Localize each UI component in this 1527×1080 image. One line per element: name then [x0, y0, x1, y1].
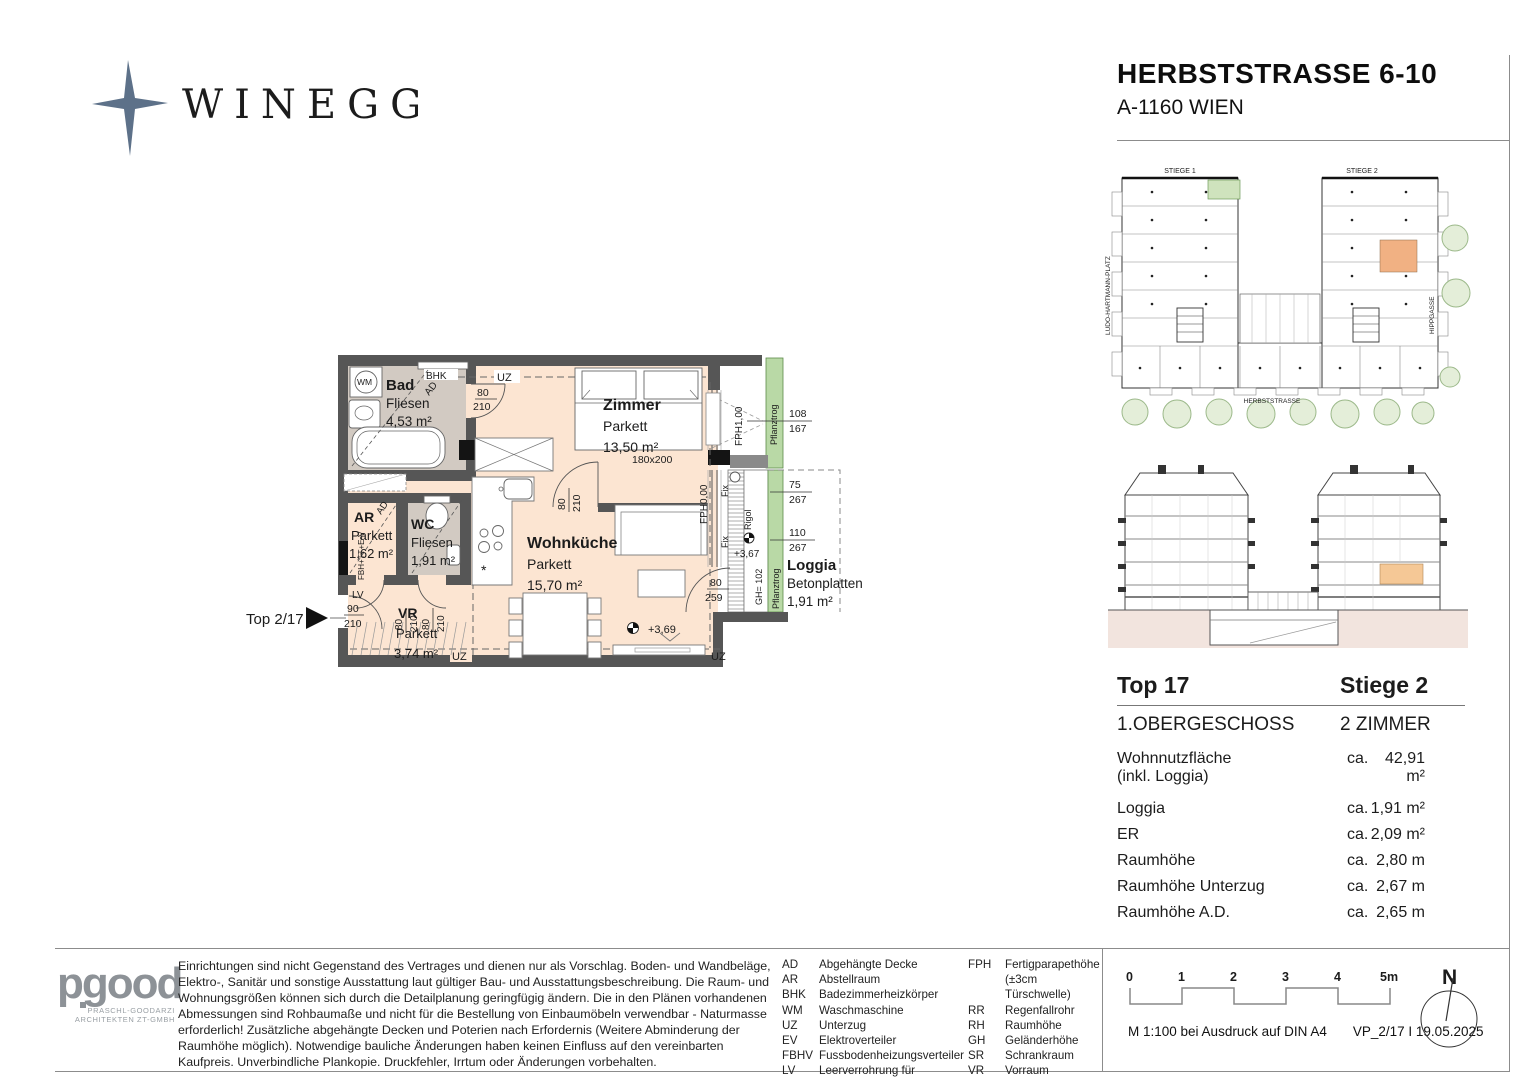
sideboard	[613, 645, 705, 655]
pgood-text: pgood	[57, 959, 181, 1008]
dim-bad-door-w: 80	[477, 387, 489, 399]
desc: Abgehängte Decke	[819, 957, 918, 972]
bad-floor: Fliesen	[386, 396, 430, 411]
green-roof-patch	[1208, 180, 1240, 199]
section-left-building	[1118, 465, 1255, 610]
section-court-structure	[1248, 592, 1318, 610]
rigol-label: Rigol	[743, 509, 753, 530]
title-block: HERBSTSTRASSE 6-10 A-1160 WIEN	[1117, 58, 1509, 120]
closet	[475, 438, 553, 471]
page-right-border	[1509, 55, 1510, 1072]
disclaimer-text: Einrichtungen sind nicht Gegenstand des …	[178, 958, 778, 1070]
row-label: Raumhöhe Unterzug	[1117, 878, 1347, 896]
ca: ca.	[1347, 852, 1368, 870]
winegg-star-icon	[92, 60, 168, 156]
stiege-label: Stiege 2	[1340, 672, 1465, 699]
legend-row: UZUnterzug	[782, 1018, 962, 1033]
vr-area: 3,74 m²	[394, 646, 439, 661]
title-rule	[1117, 140, 1509, 141]
dim-bad-door-h: 210	[473, 401, 491, 413]
kitchen-sink	[504, 479, 532, 499]
street-left-label: LUDO-HARTMANN-PLATZ	[1105, 256, 1112, 335]
highlighted-unit-section	[1380, 564, 1423, 584]
scale-text: M 1:100 bei Ausdruck auf DIN A4	[1128, 1024, 1327, 1039]
desc-line2: (±3cm Türschwelle)	[1005, 972, 1100, 1002]
desc: Waschmaschine	[819, 1003, 904, 1018]
zimmer-floor: Parkett	[603, 418, 647, 434]
dim: 267	[789, 542, 807, 554]
street-right-label: HIPPGASSE	[1429, 296, 1436, 334]
section-drawing	[1095, 465, 1485, 665]
info-row: Raumhöhe Unterzug ca.2,67 m	[1117, 878, 1465, 896]
value: 2,67 m	[1368, 878, 1425, 896]
ca: ca.	[1347, 878, 1368, 896]
loggia-area: 1,91 m²	[787, 594, 833, 609]
vr-floor: Parkett	[396, 626, 438, 641]
desc: Schrankraum	[1005, 1048, 1074, 1063]
desc: Elektroverteiler	[819, 1033, 896, 1048]
ar-area: 1,62 m²	[349, 546, 394, 561]
dim: 167	[789, 423, 807, 435]
value: 2,65 m	[1368, 904, 1425, 922]
info-row: Wohnnutzfläche (inkl. Loggia) ca.42,91 m…	[1117, 750, 1465, 786]
legend-col2: FPHFertigparapethöhe(±3cm Türschwelle) R…	[968, 957, 1098, 1080]
bad-area: 4,53 m²	[386, 414, 432, 429]
footer-separator	[1102, 948, 1103, 1072]
tick: 5m	[1380, 970, 1398, 984]
desc: Fertigparapethöhe(±3cm Türschwelle)	[1005, 957, 1100, 1003]
highlighted-unit	[1380, 240, 1417, 272]
abbr: FBHV	[782, 1048, 819, 1063]
abbr: WM	[782, 1003, 819, 1018]
architect-logo: pgood PRASCHL-GOODARZI ARCHITEKTEN ZT-GM…	[57, 966, 175, 1024]
desc: Geländerhöhe	[1005, 1033, 1079, 1048]
legend-row: SRSchrankraum	[968, 1048, 1098, 1063]
section-right-building	[1311, 465, 1447, 610]
winegg-logo: WINEGG	[88, 58, 418, 163]
loggia-floor: Betonplatten	[787, 576, 863, 591]
abbr: GH	[968, 1033, 1005, 1048]
legend-row: BHKBadezimmerheizkörper	[782, 987, 962, 1002]
fph0-label: FPH0,00	[699, 484, 710, 524]
bad-name: Bad	[386, 377, 414, 394]
desc: Fussbodenheizungsverteiler	[819, 1048, 964, 1063]
ev-box	[339, 541, 348, 575]
label-line1: Wohnnutzfläche	[1117, 750, 1231, 767]
kitchen-oven-mark: *	[481, 562, 487, 578]
lv-label: LV	[352, 590, 364, 601]
page-subtitle: A-1160 WIEN	[1117, 96, 1509, 120]
wall-stub	[730, 455, 768, 468]
row-label: Raumhöhe	[1117, 852, 1347, 870]
rr-pipe-icon	[730, 472, 740, 482]
tick: 3	[1282, 970, 1289, 984]
desc: Raumhöhe	[1005, 1018, 1062, 1033]
fix-label-1: Fix	[720, 485, 730, 497]
desc-line1: Fertigparapethöhe	[1005, 958, 1100, 971]
uz-label-bottom-right: UZ	[711, 651, 726, 663]
uz-label-top: UZ	[497, 372, 512, 384]
abbr: LV	[782, 1063, 819, 1080]
info-row: Loggia ca.1,91 m²	[1117, 800, 1465, 818]
apartment-info: Top 17 Stiege 2 1.OBERGESCHOSS 2 ZIMMER …	[1117, 672, 1465, 922]
wohn-name: Wohnküche	[527, 535, 617, 552]
abbr: VR	[968, 1063, 1005, 1078]
legend-row: ARAbstellraum	[782, 972, 962, 987]
value: 2,09 m²	[1368, 826, 1425, 844]
dining-set	[509, 593, 601, 658]
wc-floor: Fliesen	[411, 535, 453, 550]
brand-name: WINEGG	[182, 82, 418, 128]
legend-row: RHRaumhöhe	[968, 1018, 1098, 1033]
street-bottom-label: HERBSTSTRASSE	[1244, 398, 1301, 405]
pflanztrog-label-1: Pflanztrog	[771, 568, 781, 609]
scale-bar-line	[1130, 988, 1390, 1004]
abbr: FPH	[968, 957, 1005, 1003]
legend-row: LVLeerverrohrung für autom.Türöffner	[782, 1063, 962, 1080]
dim: 267	[789, 494, 807, 506]
dim: 75	[789, 479, 801, 491]
coffee-table	[638, 570, 685, 597]
value: 1,91 m²	[1368, 800, 1425, 818]
desc: Regenfallrohr	[1005, 1003, 1075, 1018]
ca: ca.	[1347, 826, 1368, 844]
row-label: Loggia	[1117, 800, 1347, 818]
scale-ticks: 0 1 2 3 4 5m	[1126, 970, 1398, 984]
sofa	[615, 505, 707, 555]
pflanztrog-label-2: Pflanztrog	[769, 404, 779, 445]
abbr: RR	[968, 1003, 1005, 1018]
legend-row: VRVorraum	[968, 1063, 1098, 1078]
architect-line2: ARCHITEKTEN ZT-GMBH	[57, 1015, 175, 1024]
ca: ca.	[1347, 750, 1368, 786]
abbr: AR	[782, 972, 819, 987]
row-label: Wohnnutzfläche (inkl. Loggia)	[1117, 750, 1347, 786]
row-label: ER	[1117, 826, 1347, 844]
tick: 4	[1334, 970, 1341, 984]
north-arrow: N	[1412, 962, 1487, 1057]
fph1-label: FPH1,00	[734, 406, 745, 446]
bhk-label: BHK	[426, 371, 447, 382]
desc: Vorraum	[1005, 1063, 1049, 1078]
dim-loggia-door-w: 80	[710, 577, 722, 589]
value: 42,91 m²	[1368, 750, 1425, 786]
top-label: Top 17	[1117, 672, 1340, 699]
abbr: UZ	[782, 1018, 819, 1033]
pillar-window	[708, 450, 730, 465]
tick: 0	[1126, 970, 1133, 984]
page-title: HERBSTSTRASSE 6-10	[1117, 58, 1509, 90]
plan-sheet: WINEGG HERBSTSTRASSE 6-10 A-1160 WIEN	[0, 0, 1527, 1080]
wohn-area: 15,70 m²	[527, 577, 583, 593]
fix-label-2: Fix	[720, 536, 730, 548]
ar-floor: Parkett	[351, 528, 393, 543]
info-subheader: 1.OBERGESCHOSS 2 ZIMMER	[1117, 714, 1465, 736]
pgood-wordmark: pgood	[57, 966, 175, 1002]
stiege1-label: STIEGE 1	[1164, 168, 1196, 175]
ca: ca.	[1347, 800, 1368, 818]
desc: Abstellraum	[819, 972, 880, 987]
north-label: N	[1442, 966, 1457, 989]
stiege2-label: STIEGE 2	[1346, 168, 1378, 175]
level-value: +3,69	[648, 624, 676, 636]
dim-entry-w: 90	[347, 603, 359, 615]
legend-row: GHGeländerhöhe	[968, 1033, 1098, 1048]
dim: 80	[556, 498, 568, 510]
legend-row: FPHFertigparapethöhe(±3cm Türschwelle)	[968, 957, 1098, 1003]
abbr: AD	[782, 957, 819, 972]
legend-row: EVElektroverteiler	[782, 1033, 962, 1048]
bed-size: 180x200	[632, 454, 672, 466]
tick: 1	[1178, 970, 1185, 984]
wm-label: WM	[357, 377, 372, 387]
top-number-label: Top 2/17	[246, 611, 304, 628]
legend-row: RRRegenfallrohr	[968, 1003, 1098, 1018]
legend-row: WMWaschmaschine	[782, 1003, 962, 1018]
dim-loggia-door-h: 259	[705, 592, 723, 604]
dim: 108	[789, 408, 807, 420]
dim-entry-h: 210	[344, 618, 362, 630]
pgood-dot	[80, 1002, 86, 1008]
info-row: Raumhöhe A.D. ca.2,65 m	[1117, 904, 1465, 922]
desc: Leerverrohrung für autom.Türöffner	[819, 1063, 962, 1080]
legend-row: FBHVFussbodenheizungsverteiler	[782, 1048, 962, 1063]
abbr: SR	[968, 1048, 1005, 1063]
ar-name: AR	[354, 509, 374, 525]
dim: 210	[571, 494, 583, 512]
zimmer-wardrobe	[706, 393, 720, 445]
tick: 2	[1230, 970, 1237, 984]
dim: 110	[789, 527, 806, 539]
vr-name: VR	[398, 605, 417, 621]
legend-row: ADAbgehängte Decke	[782, 957, 962, 972]
loggia-name: Loggia	[787, 557, 837, 574]
wc-area: 1,91 m²	[411, 553, 456, 568]
footer-top-rule	[55, 948, 1510, 949]
uz-label-bottom-left: UZ	[452, 651, 467, 663]
abbr: BHK	[782, 987, 819, 1002]
wohn-floor: Parkett	[527, 556, 571, 572]
info-row: Raumhöhe ca.2,80 m	[1117, 852, 1465, 870]
info-row: ER ca.2,09 m²	[1117, 826, 1465, 844]
row-label: Raumhöhe A.D.	[1117, 904, 1347, 922]
rigol-strip	[728, 470, 744, 612]
zimmer-area: 13,50 m²	[603, 439, 659, 455]
ca: ca.	[1347, 904, 1368, 922]
level-value: +3,67	[734, 549, 760, 560]
desc: Unterzug	[819, 1018, 866, 1033]
value: 2,80 m	[1368, 852, 1425, 870]
scale-bar: 0 1 2 3 4 5m	[1118, 965, 1408, 1013]
abbr: RH	[968, 1018, 1005, 1033]
gh-label: GH= 102	[754, 569, 764, 605]
wc-name: WC	[411, 516, 434, 532]
zimmer-name: Zimmer	[603, 397, 661, 414]
floor-label: 1.OBERGESCHOSS	[1117, 714, 1340, 736]
desc: Badezimmerheizkörper	[819, 987, 938, 1002]
floorplan-drawing: UZ UZ UZ WM BHK AD AD AD 80 210	[230, 345, 890, 690]
siteplan-drawing: STIEGE 1 STIEGE 2 LUDO-HARTMANN-PLATZ HI…	[1095, 155, 1475, 445]
abbr: EV	[782, 1033, 819, 1048]
rooms-label: 2 ZIMMER	[1340, 714, 1465, 736]
legend-col1: ADAbgehängte Decke ARAbstellraum BHKBade…	[782, 957, 962, 1080]
label-line2: (inkl. Loggia)	[1117, 768, 1209, 785]
entry-arrow-icon	[306, 607, 328, 629]
info-header: Top 17 Stiege 2	[1117, 672, 1465, 706]
